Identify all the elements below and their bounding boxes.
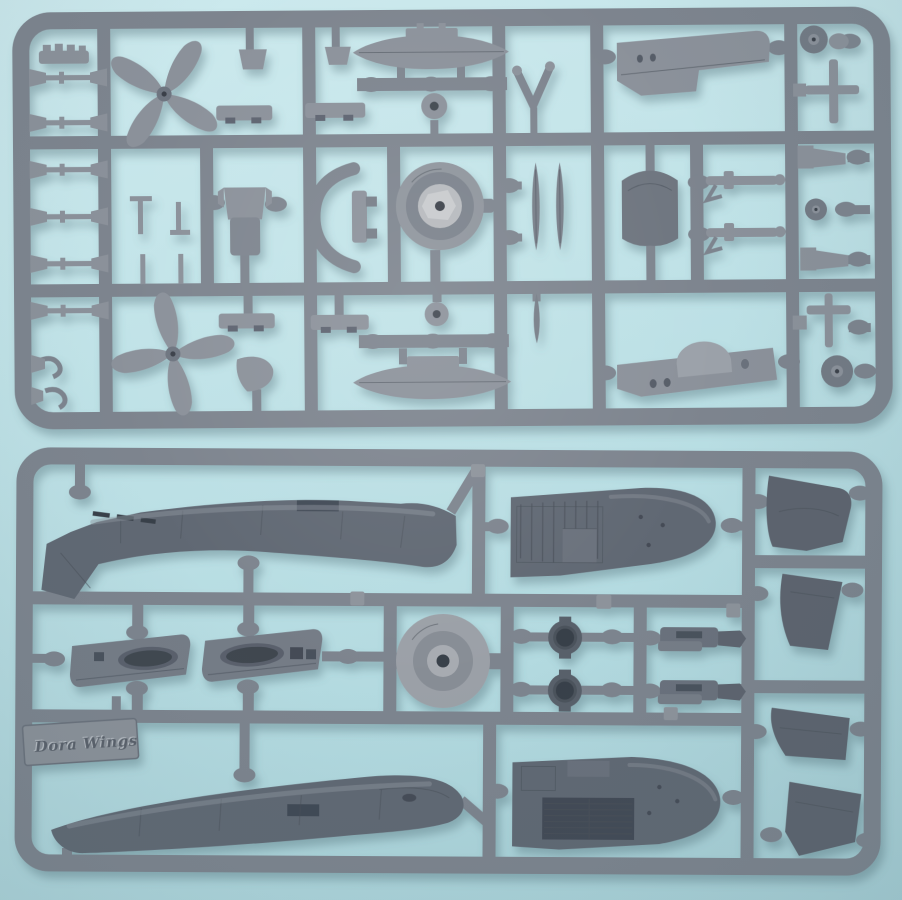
- tail-cone-segment-4: [785, 782, 861, 856]
- tail-cone-segment-1: [766, 476, 851, 551]
- sprue-b: Dora Wings Dora Wings: [22, 456, 880, 870]
- t-bar-part: [793, 293, 851, 347]
- cowl-ring-1: [548, 617, 582, 659]
- hook-parts: [31, 355, 65, 408]
- wing-half-lower: [512, 756, 721, 850]
- exhaust-stub-strip: [39, 44, 89, 64]
- wheel-hub-disc: [396, 614, 490, 708]
- tail-cone-segment-3: [771, 708, 850, 760]
- gate-pad: [596, 595, 611, 609]
- small-wheel-right: [805, 198, 827, 220]
- handle-bracket: [314, 169, 378, 267]
- canopy-rail-2: [287, 804, 319, 816]
- antenna-mast: [793, 59, 859, 123]
- drop-tank-lower: [353, 356, 511, 400]
- gate-pad: [726, 603, 740, 617]
- exhaust-manifold-1: [658, 627, 746, 651]
- landing-gear-leg-1: [706, 171, 786, 201]
- underwing-rack-4: [311, 315, 369, 333]
- control-yoke: [512, 61, 555, 105]
- underwing-rack-3: [219, 313, 275, 331]
- sprue-photo-canvas: Dora Wings Dora Wings: [0, 0, 902, 900]
- sprue-a: [21, 15, 885, 440]
- gate-pad: [471, 464, 485, 477]
- radiator-housing: [622, 170, 679, 246]
- tail-wheel: [800, 25, 849, 53]
- pilot-seat: [218, 187, 272, 255]
- gear-door-blade-2: [556, 162, 564, 250]
- small-detail-pins: [29, 68, 109, 320]
- logo-tab: Dora Wings Dora Wings: [22, 718, 138, 765]
- tail-cone-segment-2: [780, 574, 843, 650]
- hub-cap-small-2: [425, 302, 449, 326]
- gate-pad: [664, 707, 678, 720]
- cone-fairing-1: [798, 145, 846, 168]
- small-lever-parts: [130, 196, 191, 284]
- sprue-photo: Dora Wings Dora Wings: [0, 0, 902, 900]
- hub-cap-small-1: [421, 93, 447, 119]
- main-wheel-lower-right: [821, 355, 853, 387]
- wing-half-upper: [510, 487, 715, 578]
- cowl-side-panel-lower: [617, 341, 777, 397]
- exhaust-manifold-2: [658, 680, 746, 704]
- intake-fairing-1: [70, 634, 190, 688]
- gate-pad: [350, 591, 364, 605]
- drop-tank-upper: [353, 23, 509, 70]
- cone-fairing-2: [800, 247, 848, 270]
- wheel-fairing-wedge: [236, 356, 273, 391]
- fuselage-half-starboard: [51, 774, 464, 856]
- cowl-ring-front: [396, 162, 485, 251]
- intake-fairing-2: [202, 629, 322, 683]
- gear-door-blade-1: [532, 162, 540, 250]
- landing-gear-leg-2: [706, 223, 786, 253]
- cowl-ring-2: [548, 670, 582, 712]
- underwing-rack-1: [216, 49, 273, 123]
- cowl-side-panel-upper: [617, 31, 770, 96]
